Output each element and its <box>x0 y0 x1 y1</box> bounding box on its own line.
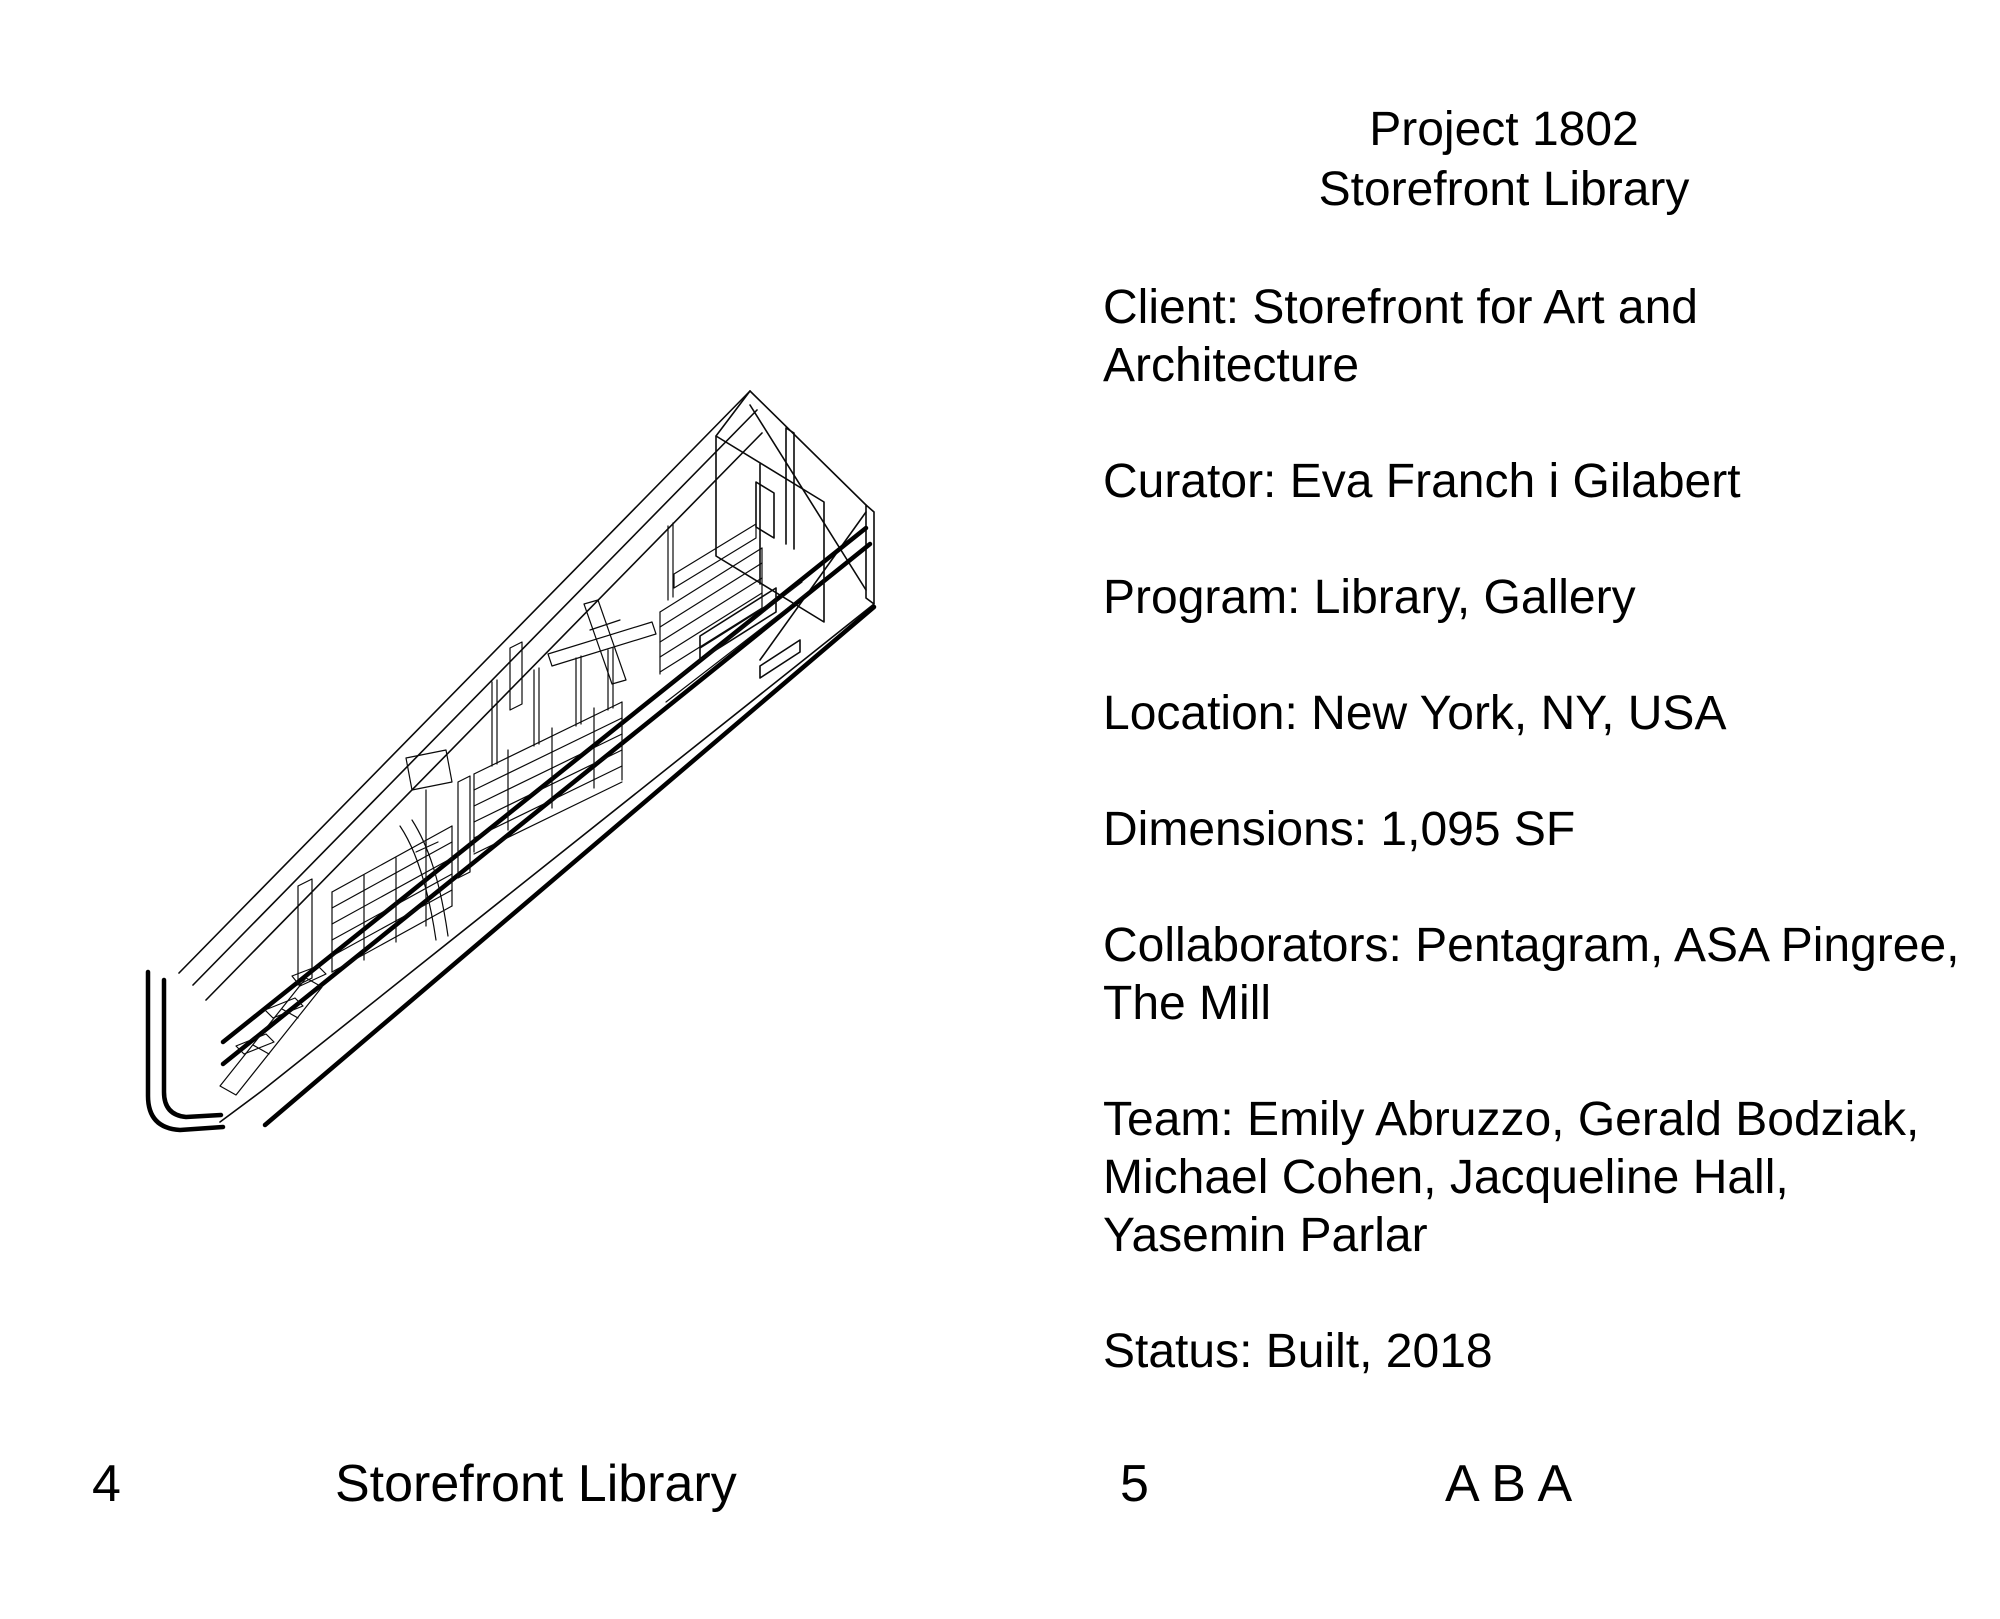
info-collaborators-line-1: Collaborators: Pentagram, ASA Pingree, <box>1103 917 1963 975</box>
page-number-right: 5 <box>1120 1455 1149 1513</box>
info-status-line-1: Status: Built, 2018 <box>1103 1323 1963 1381</box>
page-number-left: 4 <box>92 1455 121 1513</box>
axonometric-drawing-svg <box>60 330 960 1230</box>
info-curator: Curator: Eva Franch i Gilabert <box>1103 453 1963 511</box>
info-team: Team: Emily Abruzzo, Gerald Bodziak, Mic… <box>1103 1091 1963 1265</box>
info-location: Location: New York, NY, USA <box>1103 685 1963 743</box>
footer-label-right: A B A <box>1445 1455 1572 1513</box>
shelf-unit-west <box>220 879 326 1095</box>
info-dimensions-line-1: Dimensions: 1,095 SF <box>1103 801 1963 859</box>
info-client-line-2: Architecture <box>1103 337 1963 395</box>
axonometric-drawing <box>60 330 960 1230</box>
cross-table <box>548 600 656 684</box>
info-team-line-2: Michael Cohen, Jacqueline Hall, <box>1103 1149 1963 1207</box>
project-heading: Project 1802 Storefront Library <box>1008 100 2000 220</box>
book-spread: 4 Storefront Library Project 1802 Storef… <box>0 0 2000 1619</box>
gallery-envelope <box>179 391 874 1122</box>
info-program-line-1: Program: Library, Gallery <box>1103 569 1963 627</box>
project-info: Client: Storefront for Art and Architect… <box>1103 279 1963 1439</box>
info-location-line-1: Location: New York, NY, USA <box>1103 685 1963 743</box>
info-curator-line-1: Curator: Eva Franch i Gilabert <box>1103 453 1963 511</box>
info-dimensions: Dimensions: 1,095 SF <box>1103 801 1963 859</box>
info-collaborators: Collaborators: Pentagram, ASA Pingree, T… <box>1103 917 1963 1033</box>
project-number: Project 1802 <box>1008 100 2000 160</box>
info-program: Program: Library, Gallery <box>1103 569 1963 627</box>
footer-label-left: Storefront Library <box>335 1455 737 1513</box>
info-client-line-1: Client: Storefront for Art and <box>1103 279 1963 337</box>
info-team-line-3: Yasemin Parlar <box>1103 1207 1963 1265</box>
project-title: Storefront Library <box>1008 160 2000 220</box>
info-client: Client: Storefront for Art and Architect… <box>1103 279 1963 395</box>
info-team-line-1: Team: Emily Abruzzo, Gerald Bodziak, <box>1103 1091 1963 1149</box>
left-page: 4 Storefront Library <box>0 0 1008 1619</box>
info-collaborators-line-2: The Mill <box>1103 975 1963 1033</box>
info-status: Status: Built, 2018 <box>1103 1323 1963 1381</box>
